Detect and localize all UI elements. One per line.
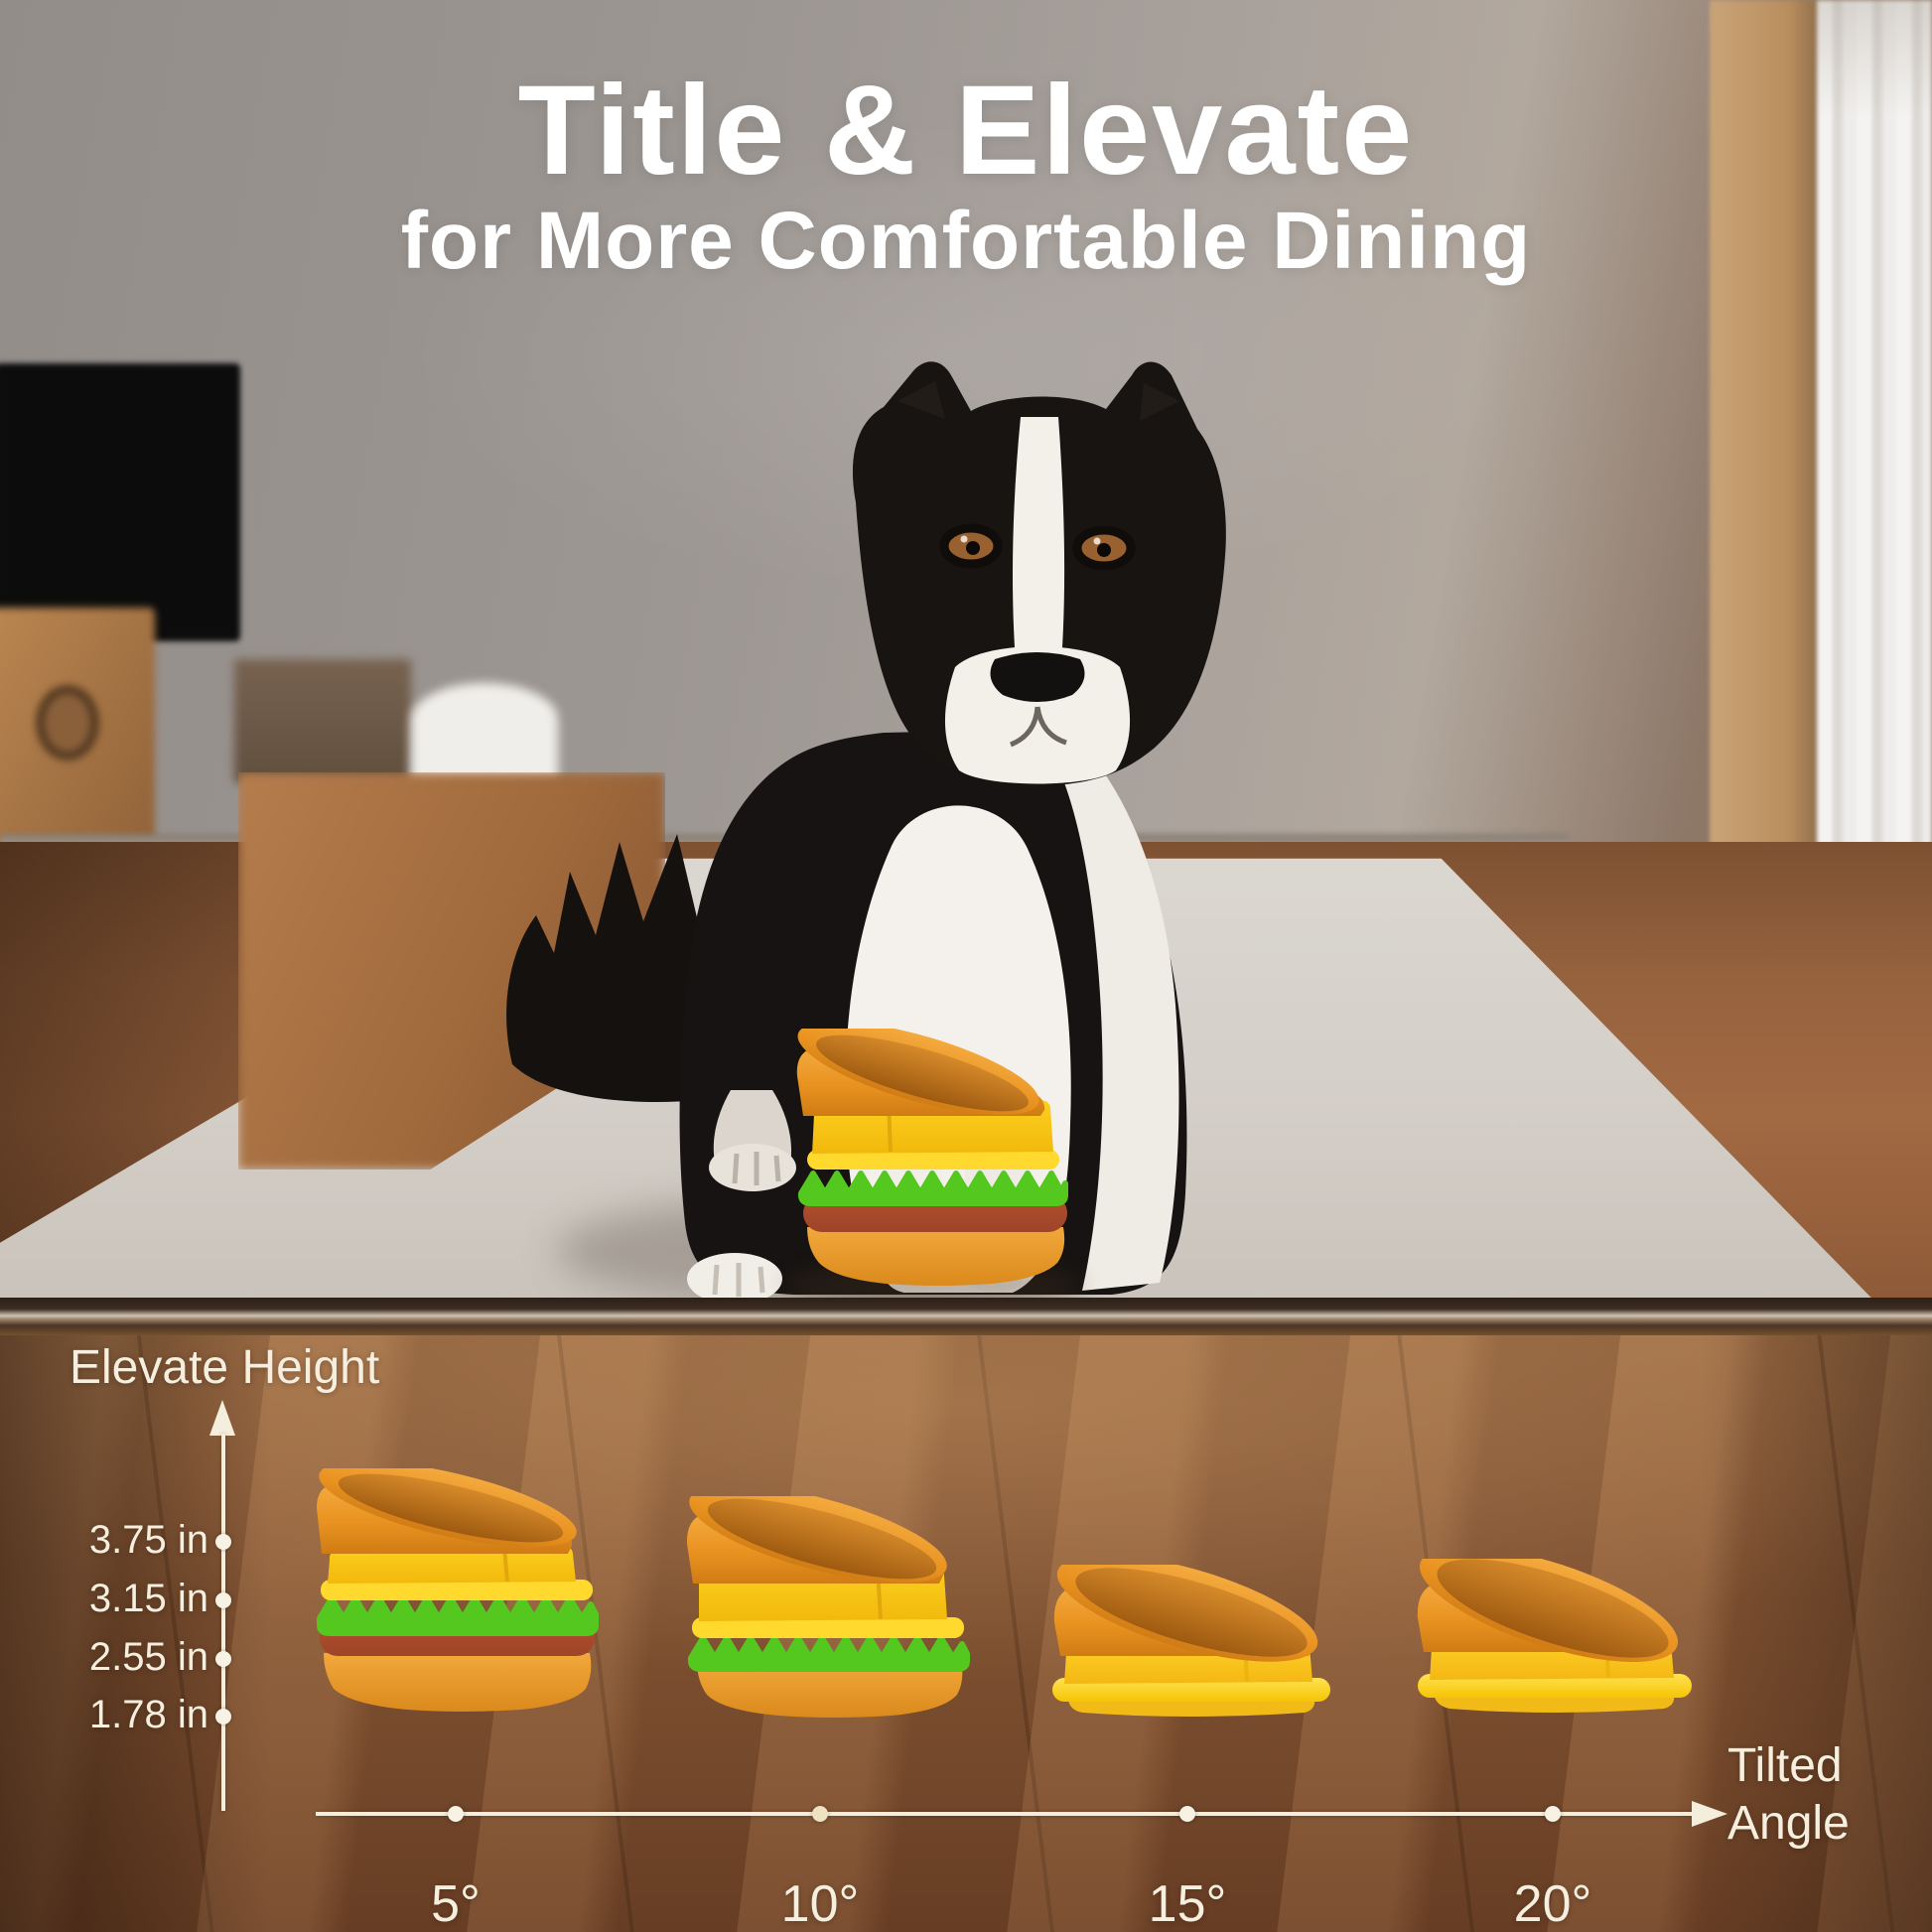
product-infographic: Title & Elevate for More Comfortable Din… — [0, 0, 1932, 1932]
y-tick-dot — [215, 1534, 231, 1550]
y-axis-arrow-icon — [209, 1400, 235, 1436]
bowl-variant-5deg — [312, 1468, 602, 1714]
x-axis-arrow-icon — [1692, 1801, 1727, 1827]
cabinet-knob — [36, 685, 99, 760]
y-tick-label: 3.75 in — [50, 1518, 208, 1563]
hamburger-bowl-product — [789, 1029, 1073, 1289]
pupil — [1097, 543, 1111, 557]
x-tick-label: 20° — [1473, 1874, 1632, 1932]
dog-paw — [709, 1144, 796, 1191]
y-tick-dot — [215, 1709, 231, 1725]
bowl-variant-20deg — [1412, 1559, 1698, 1714]
x-axis-label-line2: Angle — [1727, 1795, 1850, 1853]
page-title: Title & Elevate — [0, 58, 1932, 204]
x-tick-dot — [1179, 1806, 1195, 1822]
storage-box — [234, 659, 411, 782]
page-subtitle: for More Comfortable Dining — [0, 195, 1932, 288]
lettuce-layer — [801, 1173, 1065, 1203]
x-tick-label: 15° — [1108, 1874, 1267, 1932]
dog-paw — [687, 1253, 782, 1303]
y-axis-label: Elevate Height — [69, 1340, 379, 1395]
bowl-variant-10deg — [683, 1496, 973, 1721]
x-tick-dot — [448, 1806, 464, 1822]
dog-nose — [991, 652, 1085, 702]
lettuce-layer — [320, 1598, 596, 1633]
eye-highlight — [961, 536, 968, 543]
bowl-variant-15deg — [1048, 1565, 1334, 1718]
lettuce-layer — [691, 1638, 967, 1669]
y-tick-dot — [215, 1592, 231, 1608]
eye-highlight — [1094, 538, 1101, 545]
x-tick-label: 10° — [741, 1874, 899, 1932]
tv-screen — [0, 363, 240, 641]
x-tick-label: 5° — [376, 1874, 535, 1932]
mat-edge-divider — [0, 1298, 1932, 1335]
x-tick-dot — [812, 1806, 828, 1822]
x-axis-line — [316, 1812, 1696, 1816]
x-tick-dot — [1545, 1806, 1561, 1822]
y-tick-label: 3.15 in — [50, 1577, 208, 1621]
x-axis-label: Tilted Angle — [1727, 1737, 1850, 1853]
x-axis-label-line1: Tilted — [1727, 1737, 1850, 1795]
y-axis-line — [221, 1434, 225, 1811]
y-tick-label: 2.55 in — [50, 1635, 208, 1680]
pupil — [966, 541, 980, 555]
bun-bottom — [324, 1653, 591, 1712]
y-tick-label: 1.78 in — [50, 1693, 208, 1737]
y-tick-dot — [215, 1651, 231, 1667]
bun-bottom — [807, 1227, 1064, 1286]
